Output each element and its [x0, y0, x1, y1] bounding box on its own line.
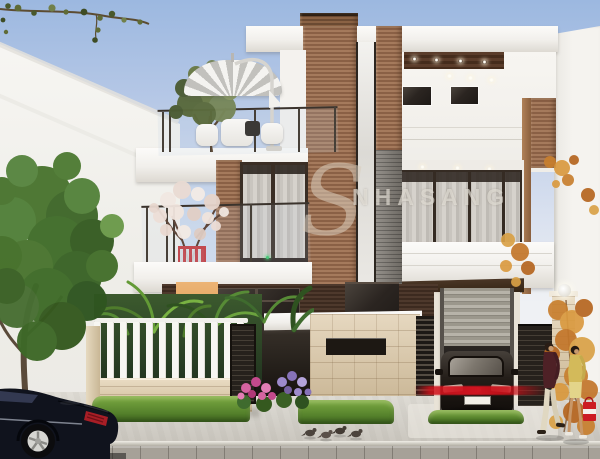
terrace-chair-1 — [196, 124, 218, 146]
roof-wood-soffit-front — [404, 52, 504, 69]
louver-gate — [416, 316, 436, 396]
eave-light-2 — [468, 76, 473, 80]
overhanging-branch — [0, 0, 150, 46]
pedestrians — [528, 338, 600, 448]
main-roof-slab — [246, 26, 558, 52]
architectural-render-canvas: S NHASANG — [0, 0, 600, 459]
center-wood-column-right — [376, 26, 402, 152]
car-mirror-left — [435, 369, 443, 375]
soffit-light-2 — [434, 58, 439, 62]
terrace-chair-3 — [261, 123, 283, 144]
entrance-stone-wall — [310, 314, 420, 396]
license-plate — [464, 396, 491, 405]
eave-light-1 — [447, 74, 452, 78]
eave-light-3 — [489, 78, 494, 82]
street-tree — [0, 136, 138, 408]
gray-metal-panel — [376, 150, 402, 286]
clerestory-window-2 — [450, 86, 479, 105]
clerestory-window-1 — [402, 86, 432, 106]
pedestrian-man — [537, 343, 565, 434]
soffit-light-3 — [458, 59, 463, 63]
balcony-light-1 — [420, 165, 425, 169]
terrace-table — [245, 121, 260, 136]
umbrella-base — [266, 146, 282, 151]
pedestrian-woman — [565, 346, 596, 439]
soffit-light-4 — [482, 60, 487, 64]
purple-flowers — [272, 366, 314, 412]
pigeons — [300, 418, 372, 442]
soffit-light-1 — [412, 57, 417, 61]
mail-slot — [326, 338, 386, 355]
street-sedan — [0, 379, 126, 459]
